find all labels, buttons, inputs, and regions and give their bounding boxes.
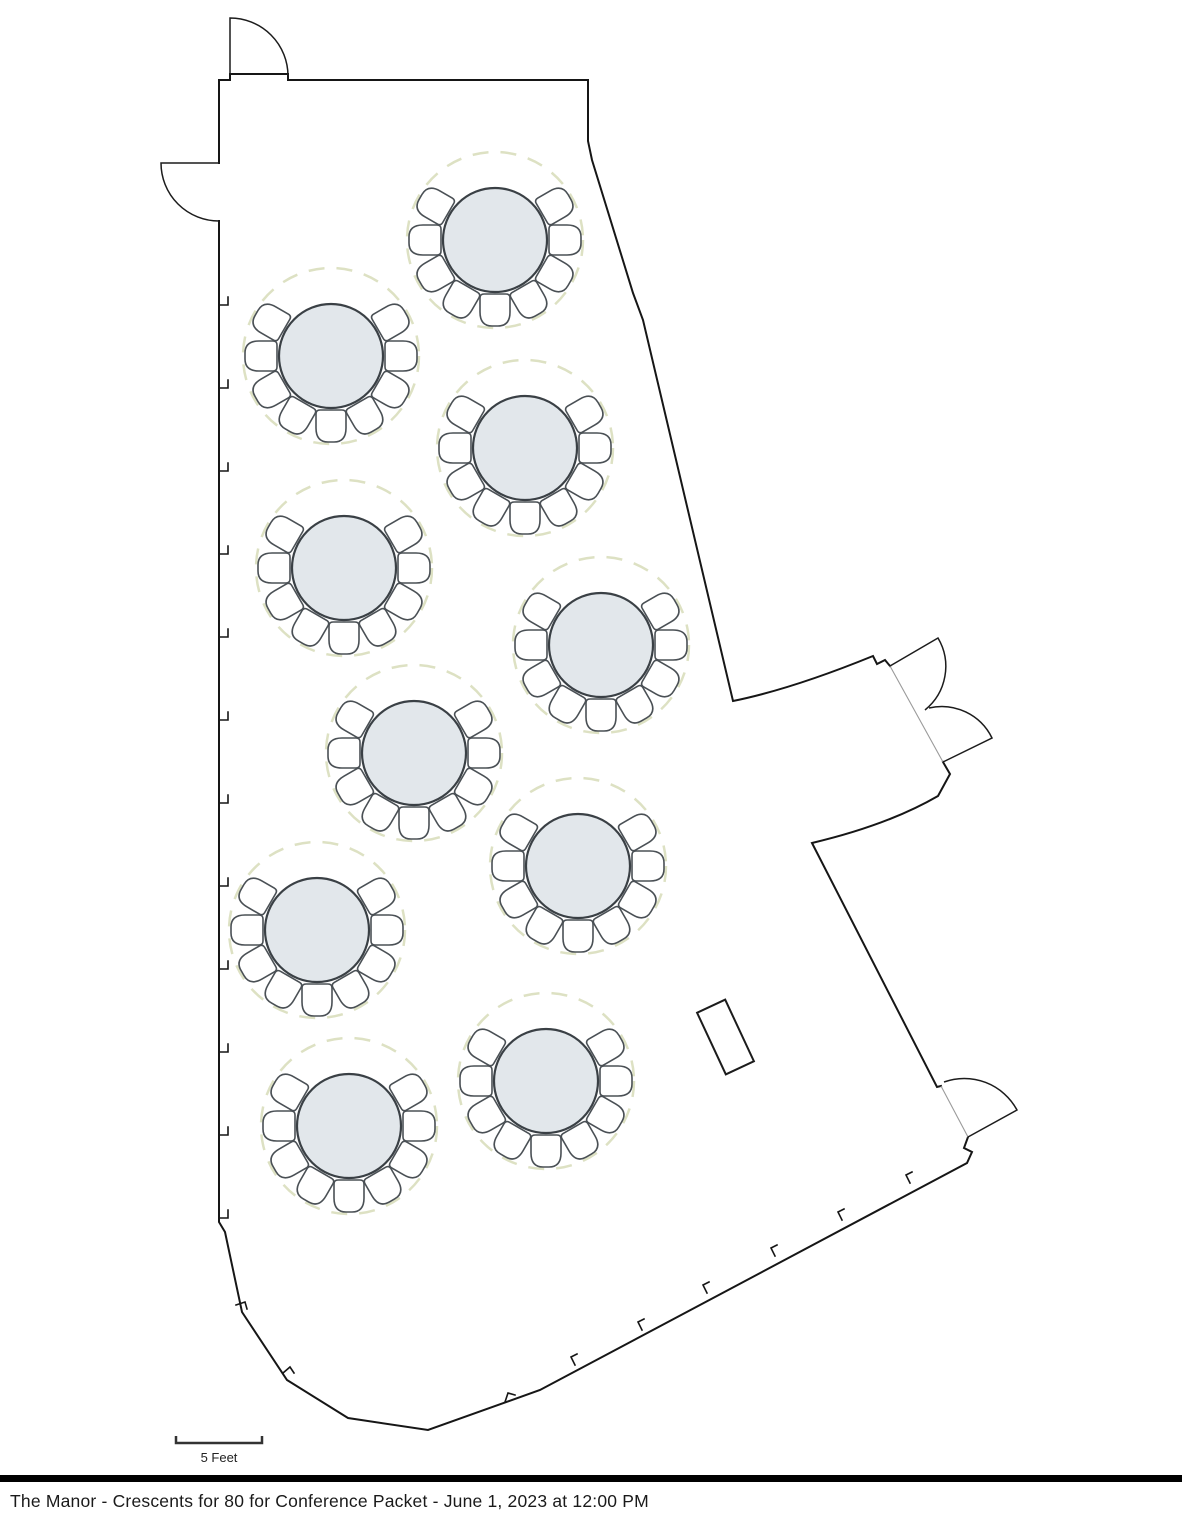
door-top-left [230, 18, 288, 76]
chair [371, 915, 403, 945]
chair [302, 984, 332, 1016]
door-bottom-right [944, 1078, 1017, 1137]
round-table [526, 814, 630, 918]
chair [510, 502, 540, 534]
chair [549, 225, 581, 255]
chair [245, 341, 277, 371]
chair [460, 1066, 492, 1096]
wall-outline-alcove-bottom [812, 762, 950, 1087]
door-left [161, 163, 219, 221]
round-table [362, 701, 466, 805]
round-table [292, 516, 396, 620]
round-table [297, 1074, 401, 1178]
alcove-door-opening [890, 666, 943, 762]
chair [329, 622, 359, 654]
chair [334, 1180, 364, 1212]
chair [316, 410, 346, 442]
floor-plan: 5 Feet [0, 0, 1182, 1529]
chair [586, 699, 616, 731]
chair [399, 807, 429, 839]
round-table [443, 188, 547, 292]
door-openings [890, 666, 968, 1137]
chair [655, 630, 687, 660]
chair [409, 225, 441, 255]
round-table [549, 593, 653, 697]
page-title: The Manor - Crescents for 80 for Confere… [10, 1491, 649, 1512]
chair [328, 738, 360, 768]
bottom-right-door-opening [941, 1086, 968, 1137]
scale-bar-rule [176, 1436, 262, 1443]
chair [263, 1111, 295, 1141]
chair [600, 1066, 632, 1096]
chair [385, 341, 417, 371]
footer-divider [0, 1475, 1182, 1482]
chair [439, 433, 471, 463]
round-table [473, 396, 577, 500]
chair [531, 1135, 561, 1167]
chair [258, 553, 290, 583]
chair [579, 433, 611, 463]
chair [480, 294, 510, 326]
chair [403, 1111, 435, 1141]
chair [231, 915, 263, 945]
banquet-tables [231, 184, 687, 1212]
chair [632, 851, 664, 881]
round-table [265, 878, 369, 982]
chair [468, 738, 500, 768]
chair [515, 630, 547, 660]
floor-plan-page: 5 Feet The Manor - Crescents for 80 for … [0, 0, 1182, 1529]
chair [563, 920, 593, 952]
podium-table [697, 1000, 754, 1075]
round-table [279, 304, 383, 408]
chair [492, 851, 524, 881]
door-alcove-top [890, 638, 946, 710]
round-table [494, 1029, 598, 1133]
scale-bar: 5 Feet [176, 1436, 262, 1465]
chair [398, 553, 430, 583]
scale-bar-label: 5 Feet [201, 1450, 238, 1465]
